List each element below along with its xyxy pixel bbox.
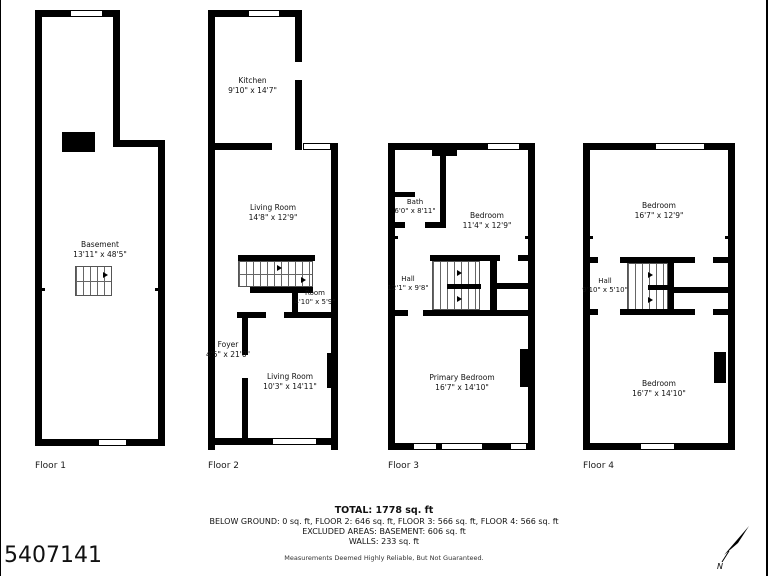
floor-2-label: Floor 2 <box>208 461 239 471</box>
wall <box>583 257 598 263</box>
fireplace <box>714 352 726 383</box>
door-marker <box>269 145 272 148</box>
room-dims: 9'10" x 14'7" <box>228 86 277 96</box>
room-name: Room <box>305 289 325 298</box>
wall <box>620 309 695 315</box>
floor-3-label: Floor 3 <box>388 461 419 471</box>
stair-direction-arrow <box>648 272 653 278</box>
room-dims: 12'1" x 9'8" <box>387 284 428 293</box>
door-marker <box>525 236 528 239</box>
stairs <box>75 266 112 296</box>
room-name: Bath <box>407 198 423 207</box>
bath-vanity <box>392 192 415 197</box>
wall <box>35 10 42 446</box>
room-dims: 4'10" x 5'9" <box>294 298 335 307</box>
room-dims: 4'5" x 21'0" <box>206 350 250 360</box>
door-marker <box>42 288 45 291</box>
room-dims: 16'7" x 12'9" <box>635 211 684 221</box>
room-label-hall: Hall 9'10" x 5'10" <box>579 277 631 296</box>
room-name: Primary Bedroom <box>429 373 494 383</box>
door-marker <box>725 236 728 239</box>
room-dims: 9'10" x 5'10" <box>582 286 628 295</box>
wall <box>583 309 598 315</box>
room-name: Living Room <box>267 372 313 382</box>
window-marker <box>441 443 483 450</box>
stair-direction-arrow <box>277 265 282 271</box>
floor-areas-text: BELOW GROUND: 0 sq. ft, FLOOR 2: 646 sq.… <box>0 517 768 526</box>
window-marker <box>413 443 437 450</box>
wall <box>423 310 528 316</box>
room-name: Kitchen <box>238 76 266 86</box>
window-marker <box>70 10 103 17</box>
stairs <box>238 261 313 287</box>
stairs <box>627 263 668 310</box>
wall <box>388 143 395 450</box>
disclaimer-text: Measurements Deemed Highly Reliable, But… <box>0 554 768 562</box>
room-dims: 10'3" x 14'11" <box>263 382 317 392</box>
floor-1-plan: Basement 13'11" x 48'5" <box>35 10 165 446</box>
room-label-bedroom: Bedroom 11'4" x 12'9" <box>444 211 530 231</box>
room-name: Bedroom <box>642 379 676 389</box>
window-marker <box>272 438 317 445</box>
wall <box>113 10 120 147</box>
room-dims: 16'7" x 14'10" <box>435 383 489 393</box>
stair-landing-line <box>239 274 312 275</box>
floor-1-label: Floor 1 <box>35 461 66 471</box>
room-label-bedroom-lower: Bedroom 16'7" x 14'10" <box>607 379 711 399</box>
excluded-areas-text: EXCLUDED AREAS: BASEMENT: 606 sq. ft <box>0 527 768 536</box>
wall <box>583 143 590 450</box>
stair-landing-wall <box>447 284 481 289</box>
fireplace <box>520 349 532 387</box>
photo-id: 5407141 <box>4 543 102 568</box>
wall <box>668 257 674 315</box>
room-dims: 11'4" x 12'9" <box>463 221 512 231</box>
room-name: Foyer <box>218 340 239 350</box>
room-dims: 6'0" x 8'11" <box>394 207 435 216</box>
fireplace <box>62 132 95 152</box>
area-summary: TOTAL: 1778 sq. ft BELOW GROUND: 0 sq. f… <box>0 505 768 562</box>
window-marker <box>655 143 705 150</box>
room-label-hall: Hall 12'1" x 9'8" <box>384 275 432 294</box>
wall <box>713 309 735 315</box>
room-label-bath: Bath 6'0" x 8'11" <box>388 198 442 217</box>
window-marker <box>248 10 280 17</box>
room-dims: 16'7" x 14'10" <box>632 389 686 399</box>
window-marker <box>98 439 127 446</box>
total-area-text: TOTAL: 1778 sq. ft <box>0 505 768 516</box>
stair-landing-wall <box>648 285 669 290</box>
north-arrow-icon: N <box>710 516 760 576</box>
door-marker <box>395 236 398 239</box>
window-marker <box>510 443 527 450</box>
north-label: N <box>717 562 723 571</box>
stair-direction-arrow <box>457 270 462 276</box>
stairs <box>432 261 480 310</box>
wall <box>388 310 408 316</box>
wall <box>518 255 528 261</box>
wall <box>295 10 302 62</box>
stair-direction-arrow <box>301 277 306 283</box>
door-marker <box>155 288 158 291</box>
wall <box>284 312 338 318</box>
room-name: Living Room <box>250 203 296 213</box>
room-label-kitchen: Kitchen 9'10" x 14'7" <box>210 76 295 96</box>
wall <box>208 143 272 150</box>
room-name: Bedroom <box>642 201 676 211</box>
walls-area-text: WALLS: 233 sq. ft <box>0 537 768 546</box>
image-border-left <box>0 0 1 576</box>
room-name: Hall <box>401 275 414 284</box>
floor-2-plan: Kitchen 9'10" x 14'7" Living Room 14'8" … <box>208 10 338 450</box>
wall <box>158 140 165 446</box>
floor-4-label: Floor 4 <box>583 461 614 471</box>
room-name: Basement <box>81 240 119 250</box>
room-label-living-room-upper: Living Room 14'8" x 12'9" <box>218 203 328 223</box>
stair-direction-arrow <box>103 272 108 278</box>
wall <box>728 143 735 450</box>
room-label-room: Room 4'10" x 5'9" <box>290 289 340 308</box>
window-marker <box>303 143 331 150</box>
wall <box>388 222 405 228</box>
stair-landing-line <box>76 281 111 282</box>
wall <box>528 143 535 450</box>
room-label-foyer: Foyer 4'5" x 21'0" <box>202 340 254 360</box>
door-marker <box>222 440 225 443</box>
wall <box>425 222 446 228</box>
room-label-primary-bedroom: Primary Bedroom 16'7" x 14'10" <box>406 373 518 393</box>
floor-3-plan: Bath 6'0" x 8'11" Bedroom 11'4" x 12'9" … <box>388 143 535 450</box>
room-dims: 14'8" x 12'9" <box>249 213 298 223</box>
door-marker <box>590 236 593 239</box>
room-name: Hall <box>598 277 611 286</box>
room-label-basement: Basement 13'11" x 48'5" <box>45 240 155 260</box>
room-name: Bedroom <box>470 211 504 221</box>
wall <box>674 287 728 293</box>
fireplace <box>327 353 338 388</box>
wall <box>713 257 735 263</box>
wall <box>490 255 497 315</box>
floorplan-page: { "photo_id": "5407141", "compass": { "l… <box>0 0 768 576</box>
wall <box>295 80 302 150</box>
room-label-bedroom-upper: Bedroom 16'7" x 12'9" <box>609 201 709 221</box>
room-label-living-room-lower: Living Room 10'3" x 14'11" <box>246 372 334 392</box>
floor-4-plan: Bedroom 16'7" x 12'9" Hall 9'10" x 5'10"… <box>583 143 735 450</box>
window-marker <box>640 443 675 450</box>
window-marker <box>487 143 520 150</box>
room-dims: 13'11" x 48'5" <box>73 250 127 260</box>
wall <box>497 283 528 289</box>
stair-direction-arrow <box>648 297 653 303</box>
stair-direction-arrow <box>457 296 462 302</box>
